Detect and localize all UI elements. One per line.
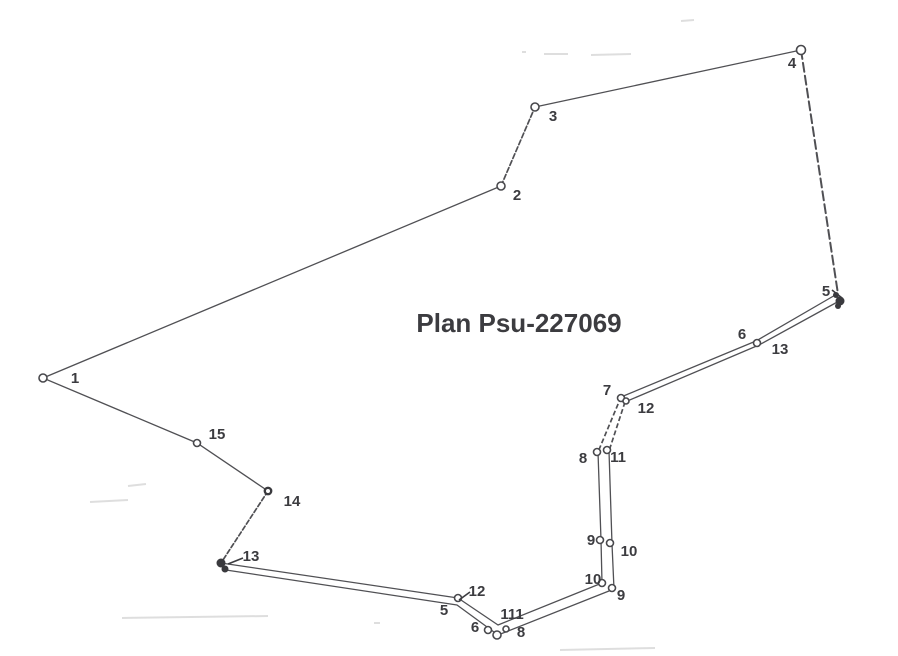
svg-text:12: 12 xyxy=(469,583,486,600)
svg-text:5: 5 xyxy=(440,602,448,619)
svg-text:7: 7 xyxy=(603,382,611,399)
svg-text:2: 2 xyxy=(513,187,521,204)
svg-text:8: 8 xyxy=(517,624,525,641)
svg-text:8: 8 xyxy=(579,450,587,467)
svg-text:4: 4 xyxy=(788,55,797,72)
svg-text:Plan Psu-227069: Plan Psu-227069 xyxy=(416,308,621,338)
svg-text:14: 14 xyxy=(284,493,301,510)
svg-text:13: 13 xyxy=(243,548,260,565)
svg-text:111: 111 xyxy=(500,606,523,623)
svg-text:15: 15 xyxy=(209,426,226,443)
svg-text:11: 11 xyxy=(610,449,626,466)
svg-text:9: 9 xyxy=(617,587,625,604)
svg-text:13: 13 xyxy=(772,341,789,358)
svg-text:12: 12 xyxy=(638,400,655,417)
svg-text:6: 6 xyxy=(471,619,479,636)
svg-text:1: 1 xyxy=(71,370,79,387)
svg-text:5: 5 xyxy=(822,283,830,300)
svg-text:6: 6 xyxy=(738,326,746,343)
svg-text:10: 10 xyxy=(585,571,602,588)
svg-text:10: 10 xyxy=(621,543,638,560)
svg-text:3: 3 xyxy=(549,108,557,125)
svg-text:9: 9 xyxy=(587,532,595,549)
